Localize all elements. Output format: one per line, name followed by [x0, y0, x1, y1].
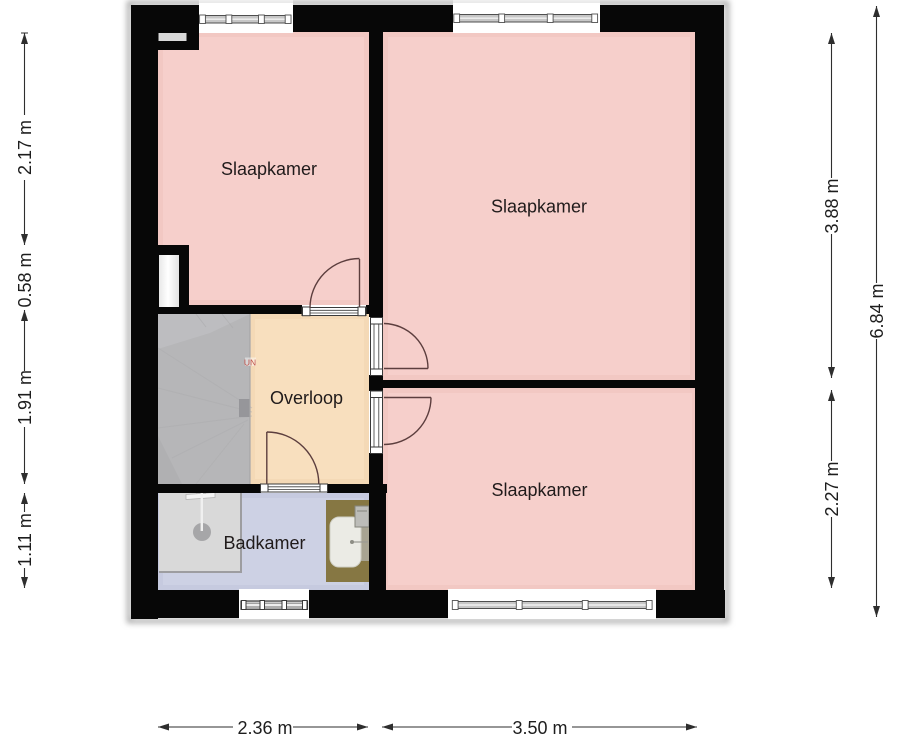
svg-text:Slaapkamer: Slaapkamer [221, 159, 317, 179]
svg-text:3.50 m: 3.50 m [512, 718, 567, 738]
svg-text:Badkamer: Badkamer [223, 533, 305, 553]
svg-text:1.11 m: 1.11 m [15, 513, 35, 567]
svg-text:Slaapkamer: Slaapkamer [491, 197, 587, 217]
svg-text:2.36 m: 2.36 m [237, 718, 292, 738]
svg-text:6.84 m: 6.84 m [867, 283, 887, 338]
svg-text:Overloop: Overloop [270, 388, 343, 408]
svg-text:2.17 m: 2.17 m [15, 120, 35, 175]
svg-text:UN: UN [244, 358, 256, 368]
svg-text:1.91 m: 1.91 m [15, 370, 35, 425]
svg-text:2.27 m: 2.27 m [822, 461, 842, 516]
svg-text:Slaapkamer: Slaapkamer [491, 480, 587, 500]
svg-text:0.58 m: 0.58 m [15, 252, 35, 307]
svg-text:3.88 m: 3.88 m [822, 178, 842, 233]
